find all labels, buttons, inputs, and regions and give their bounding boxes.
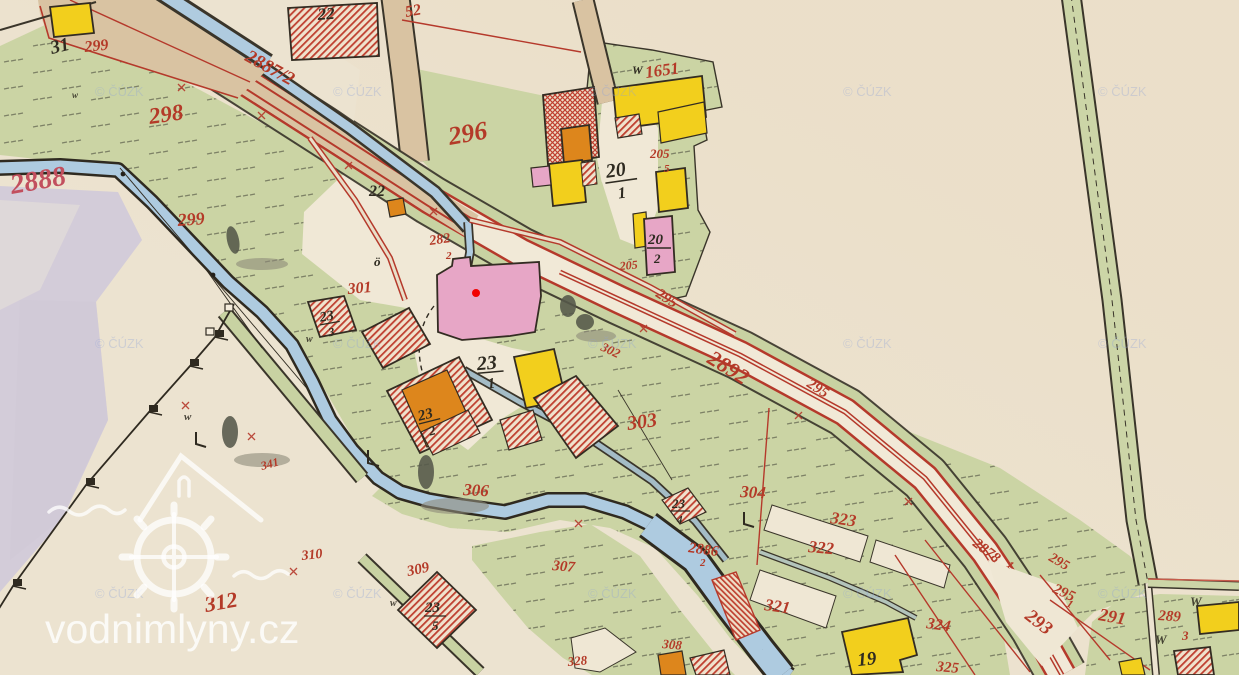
svg-text:w: w [72, 90, 79, 100]
svg-text:282: 282 [427, 231, 451, 249]
svg-text:© ČÚZK: © ČÚZK [333, 586, 382, 601]
svg-text:© ČÚZK: © ČÚZK [1098, 336, 1147, 351]
svg-text:307: 307 [551, 558, 576, 576]
svg-text:23: 23 [424, 600, 441, 616]
svg-text:299: 299 [83, 37, 110, 57]
svg-text:308: 308 [661, 636, 683, 653]
svg-text:310: 310 [300, 547, 323, 564]
svg-text:52: 52 [404, 1, 423, 21]
svg-text:325: 325 [935, 659, 960, 675]
svg-text:2: 2 [653, 251, 661, 266]
svg-text:301: 301 [346, 279, 372, 298]
svg-text:19: 19 [856, 648, 878, 671]
svg-text:23: 23 [671, 496, 686, 511]
svg-text:© ČÚZK: © ČÚZK [843, 336, 892, 351]
svg-text:22: 22 [316, 4, 336, 24]
svg-text:306: 306 [462, 480, 490, 500]
svg-text:20: 20 [603, 158, 627, 183]
svg-text:298: 298 [146, 99, 185, 129]
svg-text:W: W [632, 63, 644, 77]
svg-text:2: 2 [699, 557, 706, 569]
svg-text:vodnimlyny.cz: vodnimlyny.cz [45, 606, 299, 652]
svg-text:299: 299 [176, 208, 205, 230]
svg-text:© ČÚZK: © ČÚZK [843, 586, 892, 601]
svg-text:© ČÚZK: © ČÚZK [1098, 84, 1147, 99]
svg-text:© ČÚZK: © ČÚZK [95, 84, 144, 99]
svg-text:5: 5 [432, 618, 439, 633]
svg-text:20: 20 [647, 232, 664, 248]
svg-text:304: 304 [739, 482, 766, 502]
svg-text:322: 322 [807, 537, 836, 558]
svg-text:w: w [306, 334, 313, 345]
svg-text:328: 328 [566, 652, 588, 669]
svg-text:22: 22 [368, 183, 385, 200]
svg-text:© ČÚZK: © ČÚZK [843, 84, 892, 99]
svg-text:2: 2 [445, 250, 452, 262]
svg-text:1: 1 [487, 376, 496, 393]
svg-text:© ČÚZK: © ČÚZK [588, 336, 637, 351]
svg-text:© ČÚZK: © ČÚZK [1098, 586, 1147, 601]
svg-text:323: 323 [828, 508, 857, 531]
svg-text:W: W [1155, 632, 1168, 647]
svg-text:4: 4 [676, 514, 683, 526]
svg-text:© ČÚZK: © ČÚZK [333, 84, 382, 99]
svg-text:303: 303 [625, 409, 659, 435]
svg-text:205: 205 [618, 257, 638, 273]
svg-text:© ČÚZK: © ČÚZK [333, 336, 382, 351]
svg-text:© ČÚZK: © ČÚZK [588, 84, 637, 99]
svg-text:5: 5 [664, 163, 670, 175]
svg-text:© ČÚZK: © ČÚZK [95, 336, 144, 351]
svg-text:© ČÚZK: © ČÚZK [588, 586, 637, 601]
svg-text:324: 324 [924, 615, 951, 635]
svg-text:3: 3 [1181, 628, 1189, 643]
svg-text:w: w [390, 598, 397, 609]
svg-text:205: 205 [649, 146, 670, 161]
svg-text:w: w [184, 411, 192, 423]
svg-text:321: 321 [762, 595, 791, 618]
svg-text:289: 289 [1157, 608, 1182, 626]
svg-text:ö: ö [374, 254, 381, 269]
svg-text:W: W [1190, 594, 1203, 609]
